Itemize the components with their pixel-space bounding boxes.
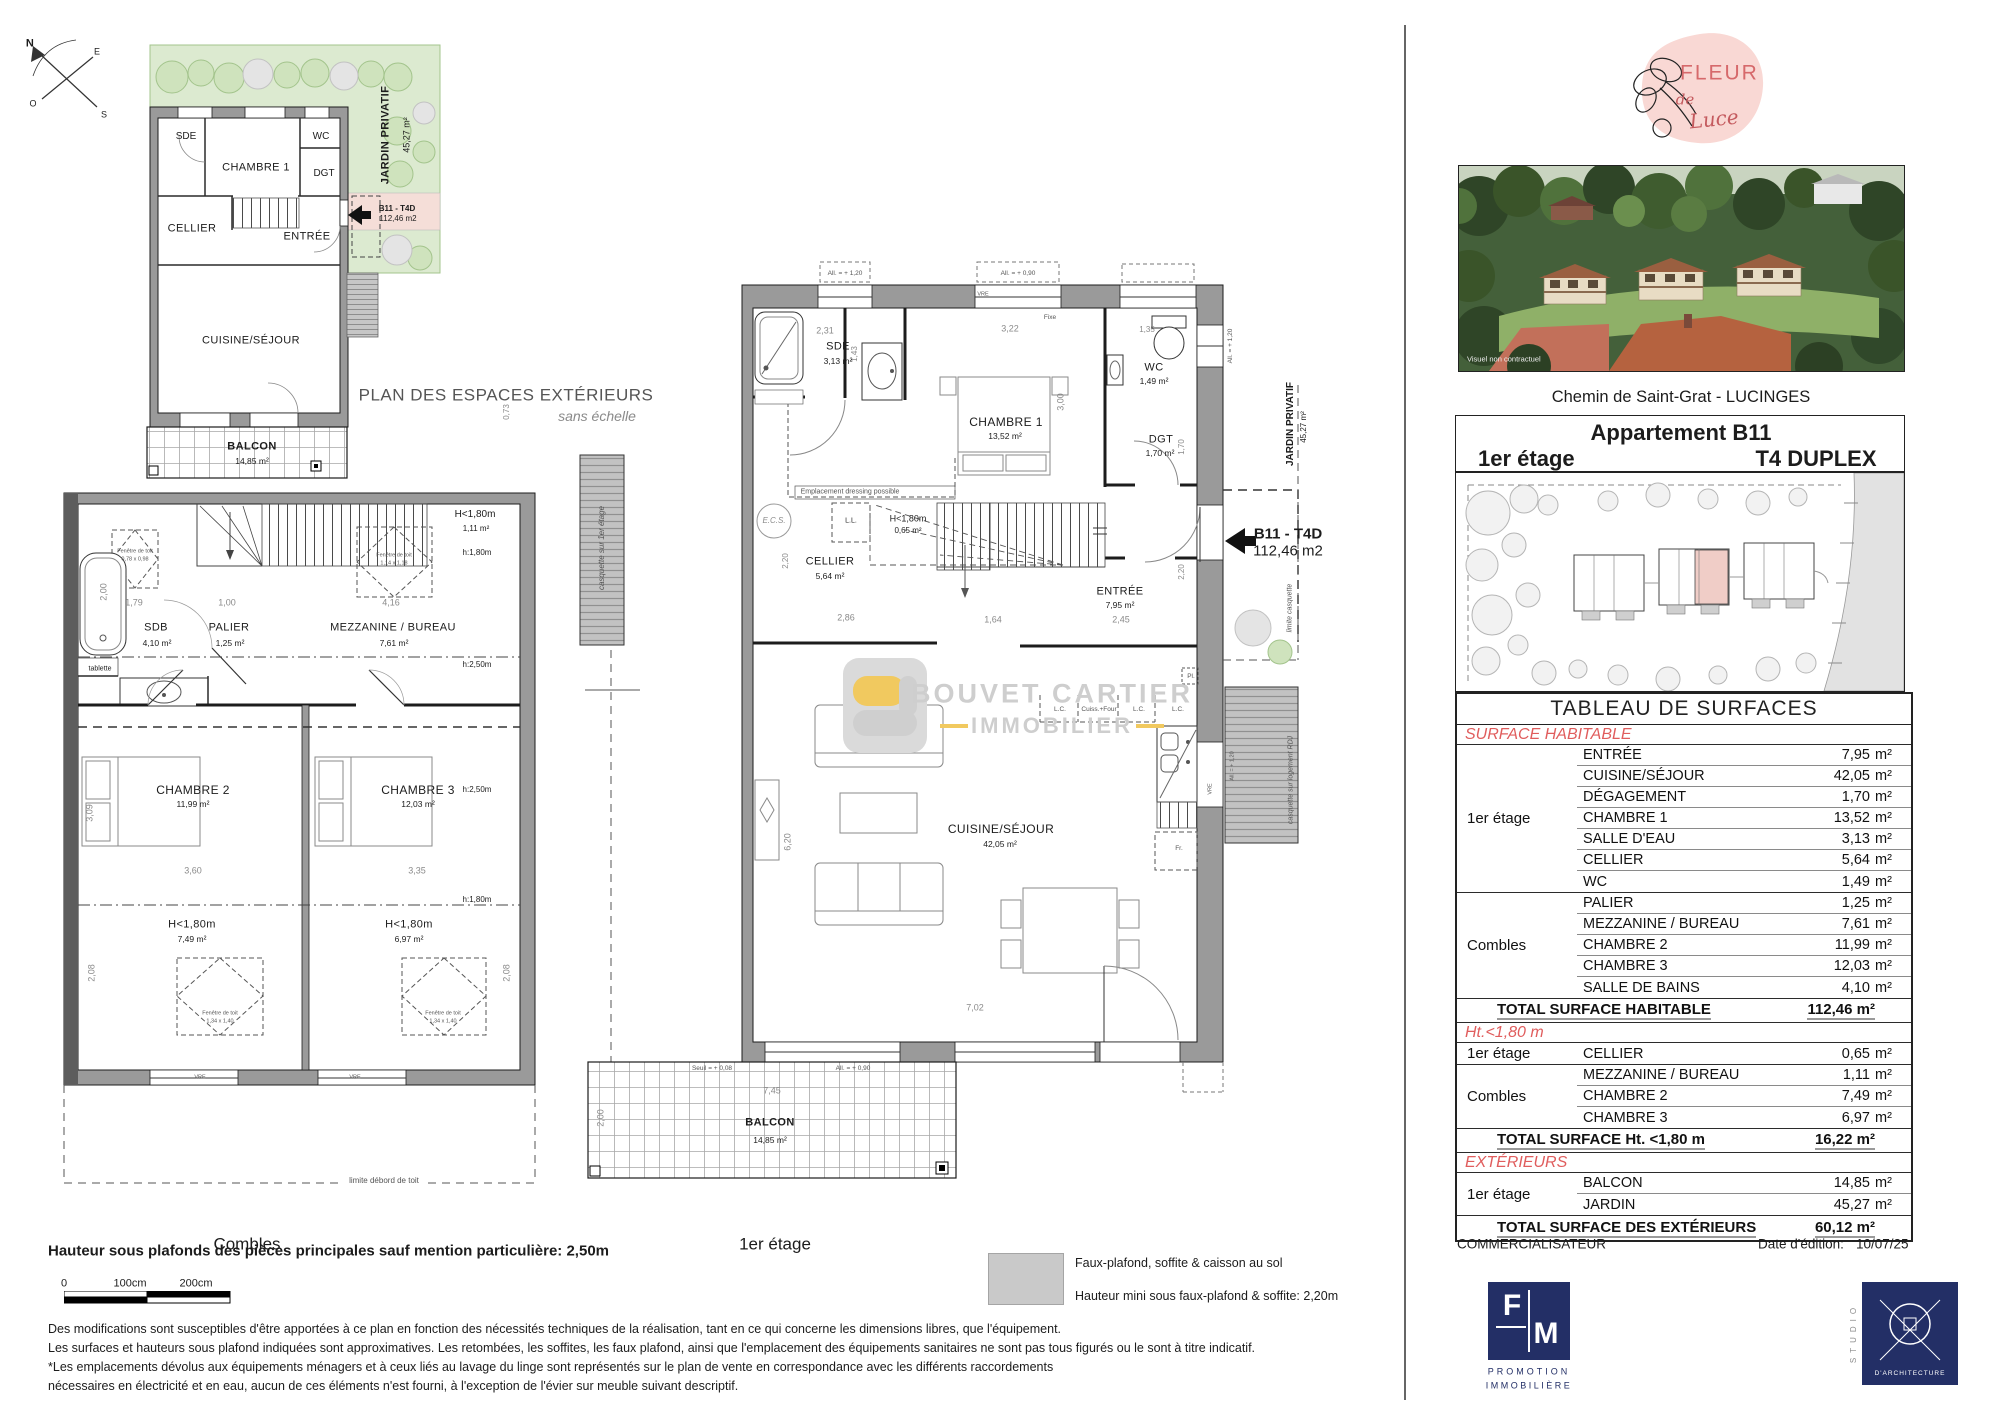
et-room-wc: WC bbox=[1144, 363, 1163, 374]
compass-e: E bbox=[94, 48, 100, 57]
surface-row-name: CHAMBRE 2 bbox=[1577, 937, 1808, 953]
surface-row-name: CUISINE/SÉJOUR bbox=[1577, 768, 1808, 784]
et-jardin: JARDIN PRIVATIF bbox=[1286, 382, 1296, 466]
surface-section-header: EXTÉRIEURS bbox=[1457, 1153, 1911, 1173]
disclaimer-line2: Les surfaces et hauteurs sous plafond in… bbox=[48, 1342, 1255, 1355]
ext-unit-tag: B11 - T4D bbox=[379, 205, 415, 213]
logo-word-de: de bbox=[1676, 93, 1694, 108]
ext-room-chambre1: CHAMBRE 1 bbox=[222, 163, 290, 174]
et-dim-300: 3,00 bbox=[1057, 393, 1066, 411]
com-dim-208a: 2,08 bbox=[88, 964, 97, 982]
surface-row-unit: m² bbox=[1870, 852, 1911, 868]
surface-row: MEZZANINE / BUREAU7,61m² bbox=[1577, 914, 1911, 935]
apartment-box: Appartement B11 1er étage T4 DUPLEX bbox=[1455, 415, 1905, 472]
project-address: Chemin de Saint-Grat - LUCINGES bbox=[1552, 389, 1811, 406]
surface-row-name: ENTRÉE bbox=[1577, 747, 1808, 763]
com-dim-335: 3,35 bbox=[408, 867, 426, 876]
com-room-mezzanine-area: 7,61 m² bbox=[380, 639, 409, 648]
et-unit-tag: B11 - T4D bbox=[1254, 527, 1322, 542]
scale-200: 200cm bbox=[179, 1279, 212, 1290]
com-h250-2: h:2,50m bbox=[463, 786, 492, 794]
surface-total-value: 60,12 m² bbox=[1815, 1219, 1875, 1238]
et-dim-164: 1,64 bbox=[984, 616, 1002, 625]
et-dim-220b: 2,20 bbox=[1178, 564, 1186, 580]
et-vre-right: VRE bbox=[1208, 783, 1214, 794]
com-roofwin4-label: Fenêtre de toit bbox=[425, 1011, 460, 1017]
com-vre1: VRE bbox=[194, 1075, 205, 1081]
watermark-line1: BOUVET CARTIER bbox=[911, 679, 1193, 710]
surface-row: CHAMBRE 211,99m² bbox=[1577, 935, 1911, 956]
surface-row-name: SALLE DE BAINS bbox=[1577, 980, 1808, 996]
surface-row-name: WC bbox=[1577, 874, 1808, 890]
com-room-sdb-area: 4,10 m² bbox=[143, 639, 172, 648]
com-dim-100: 1,00 bbox=[218, 599, 236, 608]
fim-line1: PROMOTION bbox=[1488, 1368, 1571, 1377]
fim-letter-f: F bbox=[1503, 1291, 1521, 1321]
surface-row-unit: m² bbox=[1870, 1175, 1911, 1191]
et-room-entree: ENTRÉE bbox=[1096, 587, 1143, 598]
com-h180-top-area: 1,11 m² bbox=[463, 525, 490, 533]
com-casquette-note: casquette sur 1er étage bbox=[598, 506, 606, 590]
com-dim-360: 3,60 bbox=[184, 867, 202, 876]
surface-row-value: 1,25 bbox=[1808, 895, 1870, 911]
com-roofwin2-label: Fenêtre de toit bbox=[376, 553, 411, 559]
et-h180-area: 0,65 m² bbox=[894, 527, 921, 535]
surface-group: 1er étageCELLIER0,65m² bbox=[1457, 1043, 1911, 1065]
et-dim-322: 3,22 bbox=[1001, 325, 1019, 334]
et-room-dgt: DGT bbox=[1149, 435, 1173, 446]
et-casquette-rdj: casquette sur logement RDJ bbox=[1288, 736, 1295, 824]
com-h180-line: h:1,80m bbox=[463, 549, 492, 557]
surface-row-name: DÉGAGEMENT bbox=[1577, 789, 1808, 805]
ext-room-dgt: DGT bbox=[313, 169, 334, 179]
com-h180-left-area: 7,49 m² bbox=[178, 935, 207, 944]
com-roofwin1-size: 0,78 x 0,98 bbox=[121, 557, 148, 563]
surface-row-unit: m² bbox=[1870, 768, 1911, 784]
com-roofwin3-label: Fenêtre de toit bbox=[202, 1011, 237, 1017]
com-dim-208b: 2,08 bbox=[503, 964, 512, 982]
surface-row-name: CELLIER bbox=[1577, 1046, 1808, 1062]
watermark-dash-left bbox=[940, 724, 968, 728]
disclaimer-line4: nécessaires en électricité et en eau, au… bbox=[48, 1380, 738, 1393]
surface-row: DÉGAGEMENT1,70m² bbox=[1577, 787, 1911, 808]
com-dim-073: 0,73 bbox=[503, 404, 511, 420]
ext-room-wc: WC bbox=[313, 132, 330, 142]
surface-row-name: CHAMBRE 3 bbox=[1577, 1110, 1808, 1126]
surface-row: CUISINE/SÉJOUR42,05m² bbox=[1577, 766, 1911, 787]
fleur-de-luce-logo-icon bbox=[1600, 30, 1770, 148]
commercialisateur-label: COMMERCIALISATEUR bbox=[1457, 1237, 1606, 1251]
surface-row-value: 42,05 bbox=[1808, 768, 1870, 784]
surface-row: WC1,49m² bbox=[1577, 871, 1911, 892]
surface-row: CHAMBRE 312,03m² bbox=[1577, 956, 1911, 977]
surface-row-name: CHAMBRE 3 bbox=[1577, 958, 1808, 974]
surface-row-value: 3,13 bbox=[1808, 831, 1870, 847]
surface-section-header: SURFACE HABITABLE bbox=[1457, 725, 1911, 745]
edition-date-value: 10/07/25 bbox=[1856, 1237, 1909, 1251]
com-room-chambre3-area: 12,03 m² bbox=[401, 800, 435, 809]
et-room-cellier: CELLIER bbox=[806, 557, 855, 568]
surface-row-value: 12,03 bbox=[1808, 958, 1870, 974]
com-roofwin3-size: 1,34 x 1,40 bbox=[206, 1019, 233, 1025]
com-h180-left: H<1,80m bbox=[168, 920, 216, 931]
surface-row-unit: m² bbox=[1870, 810, 1911, 826]
surface-group-rows: CELLIER0,65m² bbox=[1577, 1043, 1911, 1064]
et-dim-231: 2,31 bbox=[816, 327, 834, 336]
et-room-dgt-area: 1,70 m² bbox=[1146, 449, 1175, 458]
ext-unit-area: 112,46 m2 bbox=[379, 215, 416, 223]
com-room-chambre3: CHAMBRE 3 bbox=[381, 784, 455, 796]
surface-table: TABLEAU DE SURFACES SURFACE HABITABLE1er… bbox=[1455, 692, 1913, 1242]
et-room-chambre1: CHAMBRE 1 bbox=[969, 416, 1043, 428]
fim-logo-icon: F M bbox=[1488, 1282, 1570, 1360]
com-h180-right-area: 6,97 m² bbox=[395, 935, 424, 944]
surface-row-value: 0,65 bbox=[1808, 1046, 1870, 1062]
ext-room-cuisine: CUISINE/SÉJOUR bbox=[202, 336, 300, 347]
legend-swatch bbox=[988, 1253, 1064, 1305]
scale-0: 0 bbox=[61, 1279, 67, 1290]
surface-row-unit: m² bbox=[1870, 1088, 1911, 1104]
surface-row-name: CHAMBRE 1 bbox=[1577, 810, 1808, 826]
surface-group: 1er étageBALCON14,85m²JARDIN45,27m² bbox=[1457, 1173, 1911, 1216]
surface-row-value: 7,61 bbox=[1808, 916, 1870, 932]
com-room-palier-area: 1,25 m² bbox=[216, 639, 245, 648]
surface-row-value: 5,64 bbox=[1808, 852, 1870, 868]
com-dim-416: 4,16 bbox=[382, 599, 400, 608]
et-balcon-area: 14,85 m² bbox=[753, 1136, 787, 1145]
edition-date-label: Date d'édition: bbox=[1758, 1237, 1844, 1251]
disclaimer-line1: Des modifications sont susceptibles d'êt… bbox=[48, 1323, 1061, 1336]
com-room-chambre2: CHAMBRE 2 bbox=[156, 784, 230, 796]
com-room-mezzanine: MEZZANINE / BUREAU bbox=[330, 623, 456, 634]
site-plan bbox=[1455, 472, 1905, 692]
surface-table-body: SURFACE HABITABLE1er étageENTRÉE7,95m²CU… bbox=[1457, 725, 1911, 1240]
logo-word-luce: Luce bbox=[1688, 106, 1739, 131]
exterior-plan-graphics bbox=[147, 45, 440, 478]
et-vre-top: VRE bbox=[977, 292, 988, 298]
disclaimer-line3: *Les emplacements dévolus aux équipement… bbox=[48, 1361, 1053, 1374]
surface-row: CELLIER0,65m² bbox=[1577, 1043, 1911, 1064]
surface-total-row: TOTAL SURFACE Ht. <1,80 m16,22 m² bbox=[1457, 1129, 1911, 1153]
fim-line2: IMMOBILIÈRE bbox=[1486, 1382, 1573, 1391]
surface-group-label: 1er étage bbox=[1457, 1043, 1577, 1064]
surface-row-name: PALIER bbox=[1577, 895, 1808, 911]
surface-row-unit: m² bbox=[1870, 1197, 1911, 1213]
compass-o: O bbox=[29, 100, 36, 109]
et-room-cellier-area: 5,64 m² bbox=[816, 572, 845, 581]
et-room-cuisine: CUISINE/SÉJOUR bbox=[948, 823, 1054, 835]
surface-total-label: TOTAL SURFACE DES EXTÉRIEURS bbox=[1497, 1219, 1756, 1238]
et-limite-casquette: limite casquette bbox=[1287, 584, 1294, 633]
et-lc3: L.C. bbox=[1172, 707, 1184, 714]
apartment-title: Appartement B11 bbox=[1591, 422, 1772, 444]
et-lc1: L.C. bbox=[1054, 707, 1066, 714]
com-h180-line2: h:1,80m bbox=[463, 896, 492, 904]
surface-row-value: 1,70 bbox=[1808, 789, 1870, 805]
surface-row-name: MEZZANINE / BUREAU bbox=[1577, 916, 1808, 932]
com-h180-top: H<1,80m bbox=[455, 510, 496, 520]
studio-logo-icon: D'ARCHITECTURE bbox=[1862, 1282, 1958, 1385]
surface-group-label: Combles bbox=[1457, 1065, 1577, 1128]
surface-group: ComblesPALIER1,25m²MEZZANINE / BUREAU7,6… bbox=[1457, 893, 1911, 999]
surface-row-name: MEZZANINE / BUREAU bbox=[1577, 1067, 1808, 1083]
com-roofwin4-size: 1,34 x 1,40 bbox=[429, 1019, 456, 1025]
scale-100: 100cm bbox=[113, 1279, 146, 1290]
surface-group-label: Combles bbox=[1457, 893, 1577, 998]
surface-group: ComblesMEZZANINE / BUREAU1,11m²CHAMBRE 2… bbox=[1457, 1065, 1911, 1129]
et-ecs: E.C.S. bbox=[762, 517, 785, 525]
ext-room-sde: SDE bbox=[176, 132, 197, 142]
ext-room-cellier: CELLIER bbox=[168, 224, 217, 235]
et-seuil: Seuil = + 0,08 bbox=[692, 1066, 732, 1073]
et-dim-745: 7,45 bbox=[763, 1087, 781, 1096]
surface-row: CHAMBRE 27,49m² bbox=[1577, 1086, 1911, 1107]
etage1-floor-label: 1er étage bbox=[739, 1236, 811, 1253]
height-note: Hauteur sous plafonds des pièces princip… bbox=[48, 1244, 609, 1259]
surface-row: CHAMBRE 36,97m² bbox=[1577, 1107, 1911, 1128]
et-dim-620: 6,20 bbox=[784, 833, 793, 851]
surface-row: SALLE DE BAINS4,10m² bbox=[1577, 977, 1911, 998]
com-tablette: tablette bbox=[89, 666, 112, 673]
com-dim-200: 2,00 bbox=[100, 583, 109, 601]
com-limite-toit: limite débord de toit bbox=[349, 1177, 419, 1185]
surface-group: 1er étageENTRÉE7,95m²CUISINE/SÉJOUR42,05… bbox=[1457, 745, 1911, 893]
surface-row-value: 7,95 bbox=[1808, 747, 1870, 763]
surface-group-rows: PALIER1,25m²MEZZANINE / BUREAU7,61m²CHAM… bbox=[1577, 893, 1911, 998]
surface-row-name: CHAMBRE 2 bbox=[1577, 1088, 1808, 1104]
et-room-entree-area: 7,95 m² bbox=[1106, 601, 1135, 610]
et-dim-170: 1,70 bbox=[1178, 439, 1186, 455]
et-pl: Pl. bbox=[1187, 674, 1195, 681]
surface-group-rows: MEZZANINE / BUREAU1,11m²CHAMBRE 27,49m²C… bbox=[1577, 1065, 1911, 1128]
surface-row-value: 7,49 bbox=[1808, 1088, 1870, 1104]
compass-n: N bbox=[26, 39, 34, 50]
exterior-plan-title: PLAN DES ESPACES EXTÉRIEURS bbox=[359, 387, 654, 404]
surface-total-row: TOTAL SURFACE HABITABLE112,46 m² bbox=[1457, 999, 1911, 1023]
ext-room-entree: ENTRÉE bbox=[283, 232, 330, 243]
et-dim-286: 2,86 bbox=[837, 614, 855, 623]
et-dim-200: 2,00 bbox=[597, 1109, 606, 1127]
surface-row: SALLE D'EAU3,13m² bbox=[1577, 829, 1911, 850]
logo-word-fleur: FLEUR bbox=[1680, 63, 1759, 84]
ext-balcon-area: 14,85 m² bbox=[235, 457, 269, 466]
surface-row-unit: m² bbox=[1870, 958, 1911, 974]
surface-group-rows: ENTRÉE7,95m²CUISINE/SÉJOUR42,05m²DÉGAGEM… bbox=[1577, 745, 1911, 892]
compass-s: S bbox=[101, 111, 107, 120]
surface-row: JARDIN45,27m² bbox=[1577, 1194, 1911, 1215]
et-dim-135: 1,35 bbox=[1139, 326, 1155, 334]
surface-row-unit: m² bbox=[1870, 1067, 1911, 1083]
surface-row-unit: m² bbox=[1870, 1046, 1911, 1062]
et-room-wc-area: 1,49 m² bbox=[1140, 377, 1169, 386]
surface-row-unit: m² bbox=[1870, 916, 1911, 932]
et-dim-220a: 2,20 bbox=[782, 553, 790, 569]
com-roofwin1-label: Fenêtre de toit bbox=[117, 549, 152, 555]
surface-row-name: BALCON bbox=[1577, 1175, 1808, 1191]
surface-row: MEZZANINE / BUREAU1,11m² bbox=[1577, 1065, 1911, 1086]
surface-total-label: TOTAL SURFACE HABITABLE bbox=[1497, 1001, 1711, 1020]
et-all120-right: All. = + 1,20 bbox=[1228, 329, 1235, 364]
et-dim-245: 2,45 bbox=[1112, 616, 1130, 625]
watermark-dash-right bbox=[1136, 724, 1164, 728]
surface-total-value: 112,46 m² bbox=[1807, 1001, 1875, 1020]
com-vre2: VRE bbox=[349, 1075, 360, 1081]
et-unit-area: 112,46 m2 bbox=[1253, 544, 1323, 559]
surface-group-label: 1er étage bbox=[1457, 745, 1577, 892]
project-photo: Visuel non contractuel bbox=[1458, 165, 1905, 372]
surface-table-title: TABLEAU DE SURFACES bbox=[1457, 694, 1911, 725]
et-dressing-note: Emplacement dressing possible bbox=[801, 489, 900, 496]
surface-row-value: 6,97 bbox=[1808, 1110, 1870, 1126]
surface-row-value: 11,99 bbox=[1808, 937, 1870, 953]
exterior-plan-subtitle: sans échelle bbox=[558, 409, 636, 423]
et-room-cuisine-area: 42,05 m² bbox=[983, 840, 1017, 849]
et-all120-top: All. = + 1,20 bbox=[828, 271, 863, 278]
floor-plan-sheet: BOUVET CARTIER IMMOBILIER N E S O SDE CH… bbox=[0, 0, 2000, 1413]
photo-caption: Visuel non contractuel bbox=[1467, 355, 1541, 363]
et-room-sde: SDE bbox=[826, 342, 850, 353]
surface-row-unit: m² bbox=[1870, 937, 1911, 953]
surface-row-value: 4,10 bbox=[1808, 980, 1870, 996]
et-dim-702: 7,02 bbox=[966, 1004, 984, 1013]
surface-row: BALCON14,85m² bbox=[1577, 1173, 1911, 1194]
com-room-sdb: SDB bbox=[144, 623, 168, 634]
com-room-chambre2-area: 11,99 m² bbox=[177, 800, 210, 809]
et-balcon: BALCON bbox=[745, 1118, 794, 1129]
surface-total-label: TOTAL SURFACE Ht. <1,80 m bbox=[1497, 1131, 1705, 1150]
surface-row-value: 1,11 bbox=[1808, 1067, 1870, 1083]
surface-row-name: CELLIER bbox=[1577, 852, 1808, 868]
legend-line1: Faux-plafond, soffite & caisson au sol bbox=[1075, 1257, 1283, 1270]
surface-row-unit: m² bbox=[1870, 1110, 1911, 1126]
surface-group-label: 1er étage bbox=[1457, 1173, 1577, 1215]
com-room-palier: PALIER bbox=[209, 623, 250, 634]
surface-row-value: 14,85 bbox=[1808, 1175, 1870, 1191]
com-h250-1: h:2,50m bbox=[463, 661, 492, 669]
surface-row: CELLIER5,64m² bbox=[1577, 850, 1911, 871]
surface-row-unit: m² bbox=[1870, 895, 1911, 911]
et-room-sde-area: 3,13 m² bbox=[824, 357, 853, 366]
et-cuisson: Cuiss.+Four bbox=[1081, 707, 1116, 714]
surface-total-value: 16,22 m² bbox=[1815, 1131, 1875, 1150]
surface-row-name: JARDIN bbox=[1577, 1197, 1808, 1213]
surface-row-value: 45,27 bbox=[1808, 1197, 1870, 1213]
et-lc2: L.C. bbox=[1133, 707, 1145, 714]
ext-balcon: BALCON bbox=[227, 442, 276, 453]
com-dim-179: 1,79 bbox=[125, 599, 143, 608]
et-fixe: Fixe bbox=[1044, 315, 1056, 322]
surface-group-rows: BALCON14,85m²JARDIN45,27m² bbox=[1577, 1173, 1911, 1215]
surface-row-value: 1,49 bbox=[1808, 874, 1870, 890]
et-room-chambre1-area: 13,52 m² bbox=[988, 432, 1022, 441]
et-fr: Fr. bbox=[1175, 846, 1183, 853]
surface-row-unit: m² bbox=[1870, 831, 1911, 847]
watermark-line2: IMMOBILIER bbox=[971, 713, 1133, 739]
studio-label: D'ARCHITECTURE bbox=[1875, 1371, 1946, 1378]
com-roofwin2-size: 1,14 x 1,18 bbox=[380, 561, 407, 567]
surface-row: CHAMBRE 113,52m² bbox=[1577, 808, 1911, 829]
fim-letter-m: M bbox=[1534, 1319, 1559, 1349]
surface-row-unit: m² bbox=[1870, 874, 1911, 890]
ext-jardin: JARDIN PRIVATIF bbox=[381, 86, 392, 185]
surface-row-value: 13,52 bbox=[1808, 810, 1870, 826]
legend-line2: Hauteur mini sous faux-plafond & soffite… bbox=[1075, 1290, 1338, 1303]
surface-row-unit: m² bbox=[1870, 980, 1911, 996]
et-all090-top: All. = + 0,90 bbox=[1001, 271, 1036, 278]
surface-row: ENTRÉE7,95m² bbox=[1577, 745, 1911, 766]
ext-jardin-area: 45,27 m² bbox=[403, 117, 412, 153]
et-all090-balcon: All. = + 0,90 bbox=[836, 1066, 871, 1073]
compass-icon bbox=[31, 40, 97, 107]
apartment-type: T4 DUPLEX bbox=[1755, 448, 1876, 470]
et-ll: L.L. bbox=[845, 518, 857, 525]
surface-row-unit: m² bbox=[1870, 747, 1911, 763]
com-h180-right: H<1,80m bbox=[385, 920, 433, 931]
studio-vertical-label: STUDIO bbox=[1850, 1303, 1858, 1363]
com-dim-309: 3,09 bbox=[86, 804, 95, 822]
surface-row-name: SALLE D'EAU bbox=[1577, 831, 1808, 847]
et-all120-rdj: All. = + 1,20 bbox=[1230, 751, 1236, 780]
et-h180: H<1,80m bbox=[890, 515, 927, 524]
surface-row-unit: m² bbox=[1870, 789, 1911, 805]
etage1-plan-graphics bbox=[588, 262, 1298, 1178]
unit-arrow-icon bbox=[1225, 528, 1256, 554]
scale-bar-icon bbox=[64, 1291, 232, 1304]
surface-row: PALIER1,25m² bbox=[1577, 893, 1911, 914]
surface-section-header: Ht.<1,80 m bbox=[1457, 1023, 1911, 1043]
et-jardin-area: 45,27 m² bbox=[1300, 411, 1308, 443]
apartment-floor: 1er étage bbox=[1478, 448, 1575, 470]
